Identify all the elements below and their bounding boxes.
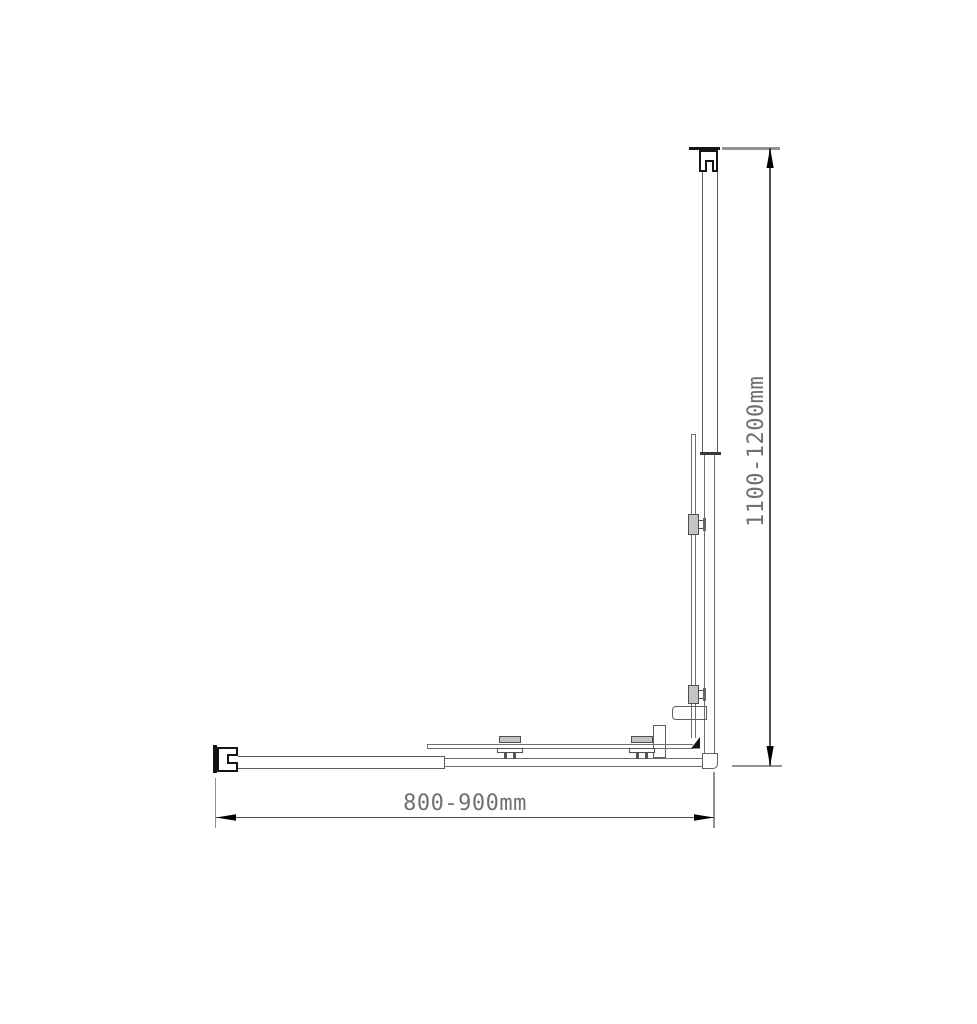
glass-clamp-lower-endbar	[703, 688, 706, 702]
bottom-rail-wide-section	[238, 756, 445, 770]
rail-clamp-left-leg	[513, 753, 516, 759]
rail-clamp-left-leg	[504, 753, 507, 759]
wall-profile-upper-wide	[702, 172, 718, 453]
corner-junction-block	[702, 753, 718, 769]
left-wall-bracket-notch	[227, 754, 238, 764]
rail-clamp-right	[631, 736, 653, 743]
rail-clamp-right-plate	[629, 748, 655, 753]
support-arm-bracket	[672, 706, 707, 720]
rail-clamp-left	[499, 736, 521, 743]
dimension-label-width: 800-900mm	[365, 792, 565, 816]
dimension-label-height: 1100-1200mm	[745, 387, 769, 527]
top-wall-bracket-notch	[705, 160, 714, 172]
extension-line-bottom-right	[713, 772, 715, 828]
support-post-bracket	[653, 725, 666, 758]
rail-clamp-left-plate	[497, 748, 523, 753]
technical-drawing-canvas: 1100-1200mm 800-900mm	[0, 0, 977, 1024]
extension-line-bottom-left	[215, 778, 217, 828]
extension-line-corner-right	[732, 765, 782, 767]
dimension-line-vertical	[769, 148, 771, 766]
bottom-rail-narrow-section	[445, 758, 702, 767]
glass-clamp-upper-endbar	[703, 518, 706, 532]
rail-clamp-right-leg	[645, 753, 648, 759]
rail-clamp-right-leg	[636, 753, 639, 759]
glass-clamp-upper	[688, 514, 700, 535]
glass-clamp-lower	[688, 685, 700, 704]
dimension-line-horizontal	[216, 817, 714, 819]
arrowheads-overlay	[0, 0, 977, 1024]
extension-line-top	[722, 147, 780, 150]
